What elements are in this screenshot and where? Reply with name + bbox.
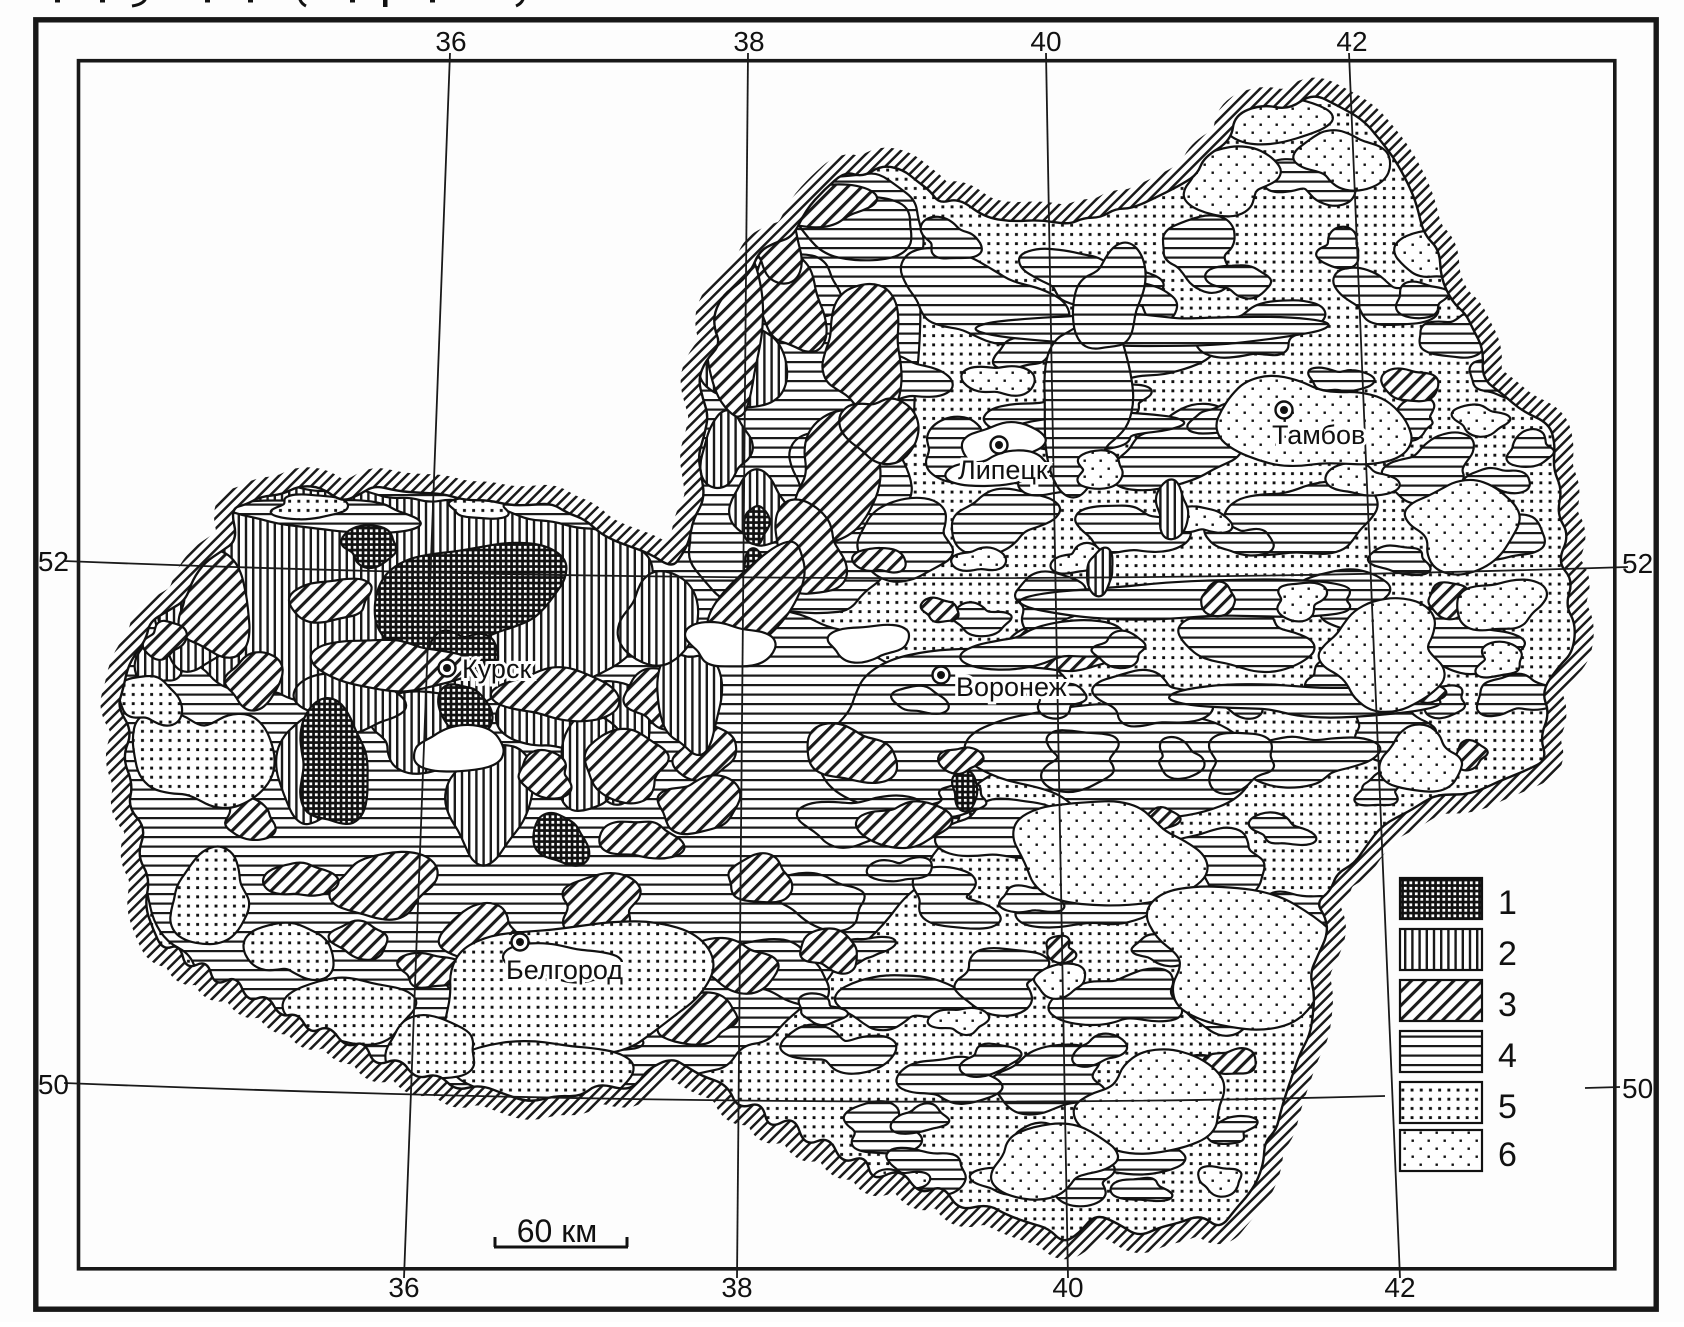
- svg-text:38: 38: [721, 1272, 752, 1303]
- svg-text:42: 42: [1336, 26, 1367, 57]
- svg-text:6: 6: [1498, 1136, 1517, 1174]
- svg-text:52: 52: [38, 546, 69, 577]
- svg-text:40: 40: [1030, 26, 1061, 57]
- svg-text:Воронеж: Воронеж: [956, 672, 1067, 702]
- svg-text:36: 36: [388, 1272, 419, 1303]
- svg-text:36: 36: [435, 26, 466, 57]
- svg-text:2: 2: [1498, 935, 1517, 973]
- svg-text:50: 50: [38, 1069, 69, 1100]
- svg-text:52: 52: [1622, 548, 1653, 579]
- svg-text:4: 4: [1498, 1037, 1517, 1075]
- svg-text:Липецк: Липецк: [958, 455, 1048, 485]
- svg-text:Курск: Курск: [462, 654, 531, 684]
- svg-text:3: 3: [1498, 986, 1517, 1024]
- svg-text:38: 38: [733, 26, 764, 57]
- svg-text:50: 50: [1622, 1073, 1653, 1104]
- svg-text:40: 40: [1052, 1272, 1083, 1303]
- svg-text:1: 1: [1498, 884, 1517, 922]
- svg-text:60 км: 60 км: [517, 1213, 597, 1249]
- svg-text:5: 5: [1498, 1088, 1517, 1126]
- svg-text:Белгород: Белгород: [506, 955, 623, 985]
- svg-text:Тамбов: Тамбов: [1272, 420, 1365, 450]
- svg-text:42: 42: [1384, 1272, 1415, 1303]
